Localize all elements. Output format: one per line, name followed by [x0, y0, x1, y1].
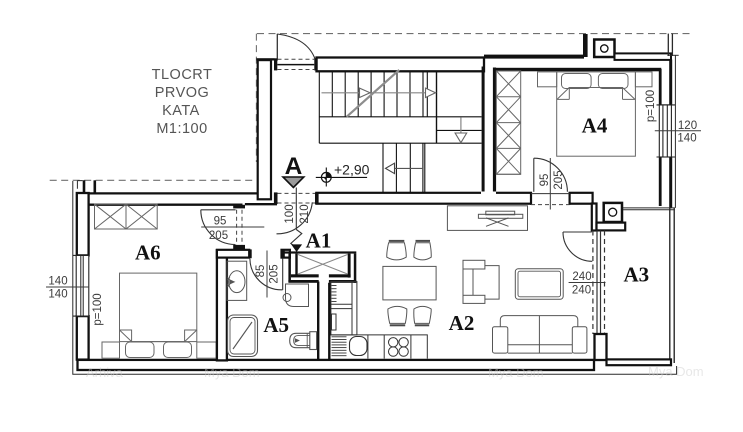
svg-text:140: 140 [677, 132, 696, 144]
svg-text:Mya Dom: Mya Dom [204, 365, 260, 380]
svg-text:Mya Dom: Mya Dom [488, 365, 544, 380]
svg-text:210: 210 [299, 204, 311, 223]
svg-text:240: 240 [572, 271, 591, 283]
svg-text:85: 85 [255, 265, 267, 278]
svg-text:A3: A3 [623, 263, 649, 287]
svg-text:140: 140 [48, 289, 67, 301]
svg-text:A1: A1 [306, 229, 332, 253]
svg-text:Mya Dom: Mya Dom [648, 364, 704, 379]
svg-text:205: 205 [553, 170, 565, 189]
svg-text:95: 95 [539, 174, 551, 187]
svg-text:A5: A5 [263, 313, 289, 337]
svg-text:PRVOG: PRVOG [155, 85, 210, 101]
svg-text:p=100: p=100 [92, 293, 104, 325]
svg-text:A: A [285, 153, 303, 180]
svg-text:95: 95 [214, 216, 227, 228]
svg-text:205: 205 [209, 230, 228, 242]
svg-text:M1:100: M1:100 [156, 121, 207, 137]
svg-text:Arhiva: Arhiva [86, 365, 124, 380]
svg-text:A4: A4 [582, 114, 608, 138]
svg-text:140: 140 [48, 276, 67, 288]
svg-text:p=100: p=100 [645, 90, 657, 122]
svg-text:TLOCRT: TLOCRT [152, 67, 213, 83]
svg-text:+2,90: +2,90 [334, 162, 370, 178]
svg-text:100: 100 [284, 204, 296, 223]
svg-text:120: 120 [678, 120, 697, 132]
svg-text:A6: A6 [135, 240, 161, 264]
svg-text:KATA: KATA [162, 103, 200, 119]
svg-text:240: 240 [572, 284, 591, 296]
svg-text:A2: A2 [449, 311, 475, 335]
svg-text:205: 205 [269, 264, 281, 283]
